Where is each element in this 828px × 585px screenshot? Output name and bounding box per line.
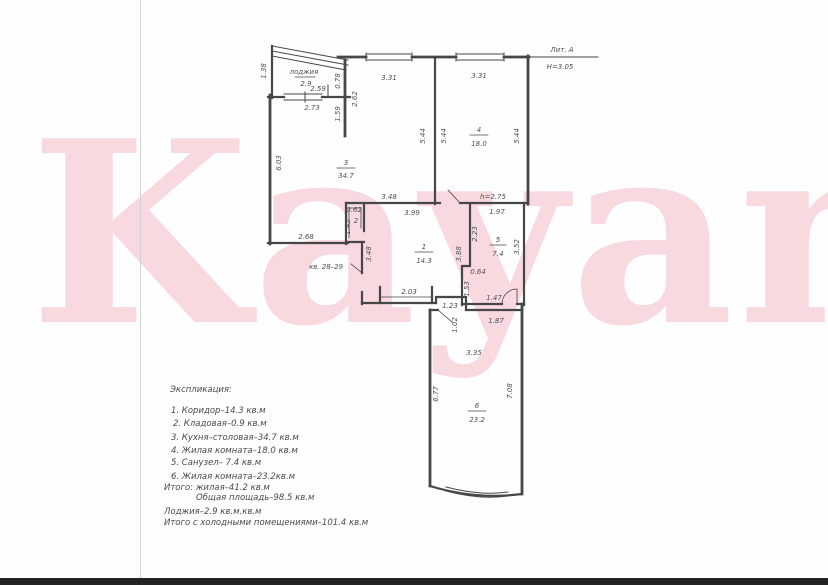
dim-label: 1.23: [442, 302, 458, 310]
room1-number: 1: [422, 243, 426, 251]
floor-plan-drawing: Лит. А Н=3.05 лоджия 2.9 3 34.7 4 18.0 1…: [0, 0, 828, 585]
dim-label: 3.35: [466, 349, 482, 357]
dim-label: 6.03: [275, 155, 283, 171]
ceiling-note: h=2.75: [480, 193, 506, 201]
dim-label: 3.31: [381, 74, 397, 82]
dim-label: 1.45: [344, 219, 352, 235]
room2-number: 2: [354, 217, 359, 225]
wall-curved: [430, 486, 522, 496]
dim-label: 1.59: [334, 106, 342, 122]
legend-item: 5. Санузел– 7.4 кв.м: [171, 458, 261, 468]
dim-label: 2.68: [298, 233, 314, 241]
window-line: [456, 53, 504, 61]
dim-label: 2.59: [310, 85, 326, 93]
dim-label: 1.38: [260, 63, 268, 79]
room4-area: 18.0: [471, 140, 487, 148]
legend-item: 4. Жилая комната–18.0 кв.м: [171, 446, 298, 456]
dim-label: 2.62: [351, 91, 359, 107]
dim-label: 0.62: [346, 206, 362, 214]
dim-label: 7.08: [506, 383, 514, 399]
dim-label: 1.97: [489, 208, 505, 216]
dim-label: 3.31: [471, 72, 487, 80]
dim-label: 0.78: [334, 73, 342, 89]
dim-label: 2.73: [304, 104, 320, 112]
room3-number: 3: [344, 159, 348, 167]
dim-label: 5.44: [440, 128, 448, 144]
window-line: [284, 94, 322, 100]
door-leaf: [448, 190, 460, 203]
legend-total: Лоджия–2.9 кв.м.кв.м: [164, 507, 261, 517]
dim-label: 1.87: [488, 317, 504, 325]
room6-number: 6: [475, 402, 480, 410]
entrance-door-leaf: [351, 264, 362, 273]
floorplan-sheet: Kayan: [0, 0, 828, 585]
outer-top-walls: [338, 53, 529, 61]
dim-label: 1.47: [486, 294, 502, 302]
neighbor-flats-label: кв. 28–29: [309, 263, 344, 271]
dim-label: 0.64: [470, 268, 486, 276]
legend-total: Итого с холодными помещениями–101.4 кв.м: [164, 518, 368, 528]
room5-number: 5: [496, 236, 501, 244]
legend-item: 2. Кладовая–0.9 кв.м: [173, 419, 267, 429]
dim-label: 6.77: [432, 386, 440, 402]
dim-label: 1.02: [451, 317, 459, 333]
lit-label: Лит. А: [549, 46, 573, 54]
window-line: [366, 53, 412, 61]
legend-total: Общая площадь–98.5 кв.м: [196, 493, 314, 503]
legend-title: Экспликация:: [170, 385, 232, 395]
ceiling-height-label: Н=3.05: [547, 63, 574, 71]
room3-area: 34.7: [338, 172, 354, 180]
legend-total: Итого: жилая–41.2 кв.м: [164, 483, 270, 493]
door-leaf: [438, 310, 452, 322]
dimension-labels-horizontal: 2.59 2.73 3.31 3.31 3.48 h=2.75 0.62 3.9…: [298, 72, 506, 357]
room6-walls: [430, 304, 522, 497]
legend-item: 1. Коридор–14.3 кв.м: [171, 406, 266, 416]
room4-number: 4: [477, 126, 481, 134]
room6-area: 23.2: [469, 416, 485, 424]
room5-area: 7.4: [492, 250, 503, 258]
dim-label: 3.88: [455, 246, 463, 262]
legend-item: 3. Кухня–столовая–34.7 кв.м: [171, 433, 299, 443]
dim-label: 3.48: [365, 246, 373, 262]
room1-area: 14.3: [416, 257, 432, 265]
room-labels: лоджия 2.9 3 34.7 4 18.0 1 14.3 5 7.4 6 …: [289, 68, 506, 424]
dim-label: 3.48: [381, 193, 397, 201]
dim-label: 2.03: [401, 288, 417, 296]
dim-label: 3.99: [404, 209, 420, 217]
dim-label: 1.53: [463, 281, 471, 297]
bottom-edge-bar: [0, 578, 828, 585]
dim-label: 3.52: [513, 239, 521, 255]
dim-label: 5.44: [513, 128, 521, 144]
dim-label: 5.44: [419, 128, 427, 144]
door-leaf: [502, 289, 517, 304]
loggia-name: лоджия: [289, 68, 319, 76]
dim-label: 2.23: [471, 226, 479, 242]
legend-item: 6. Жилая комната–23.2кв.м: [171, 472, 295, 482]
